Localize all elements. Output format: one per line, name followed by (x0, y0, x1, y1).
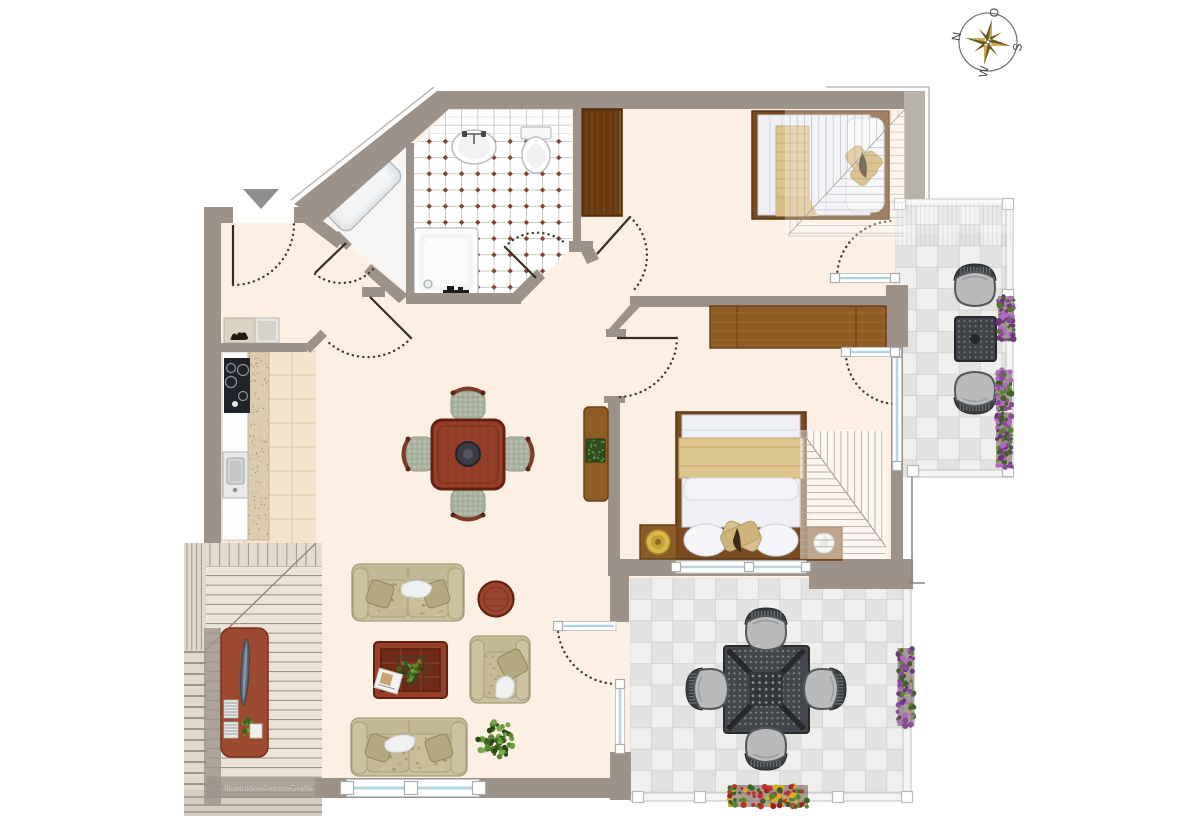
svg-text:Illustration©immoGrafik: Illustration©immoGrafik (224, 783, 313, 793)
